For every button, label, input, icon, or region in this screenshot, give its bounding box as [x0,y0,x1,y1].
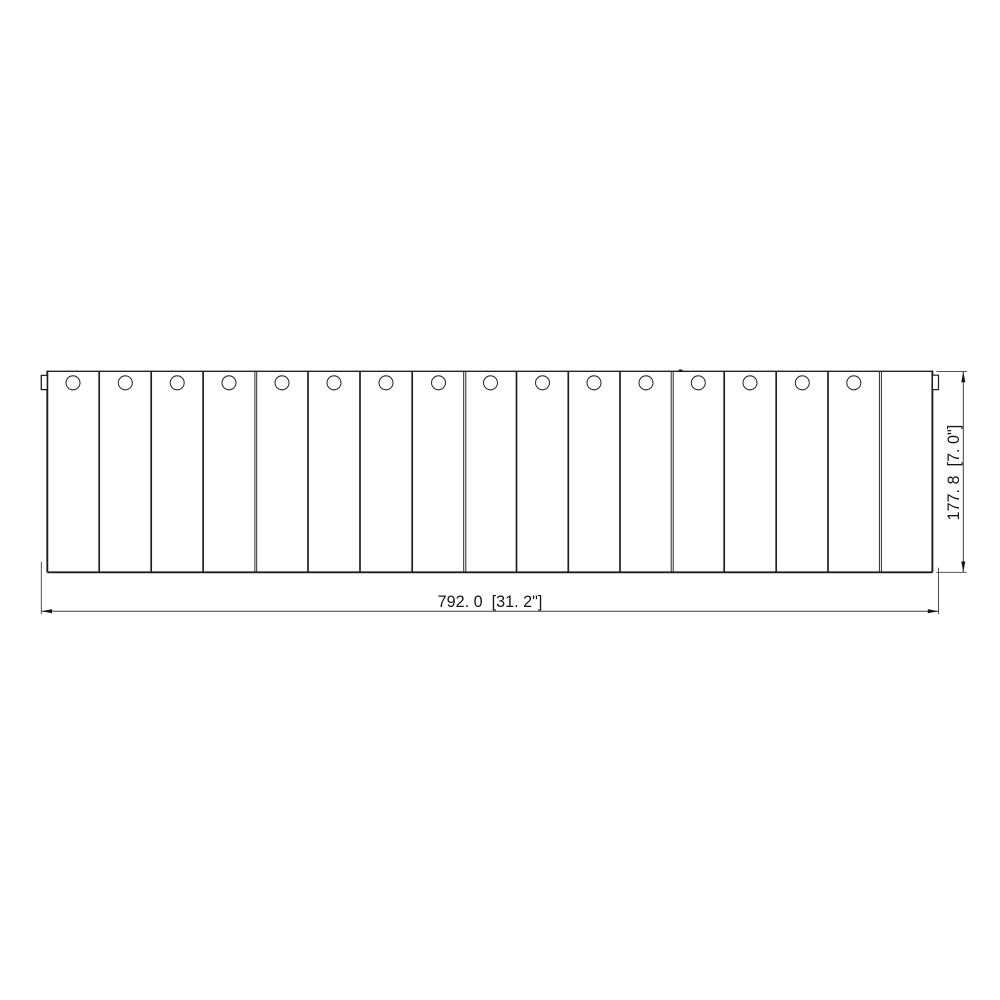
svg-text:177. 8 [7. 0"]: 177. 8 [7. 0"] [945,425,963,521]
svg-text:792. 0 [31. 2"]: 792. 0 [31. 2"] [438,593,543,611]
